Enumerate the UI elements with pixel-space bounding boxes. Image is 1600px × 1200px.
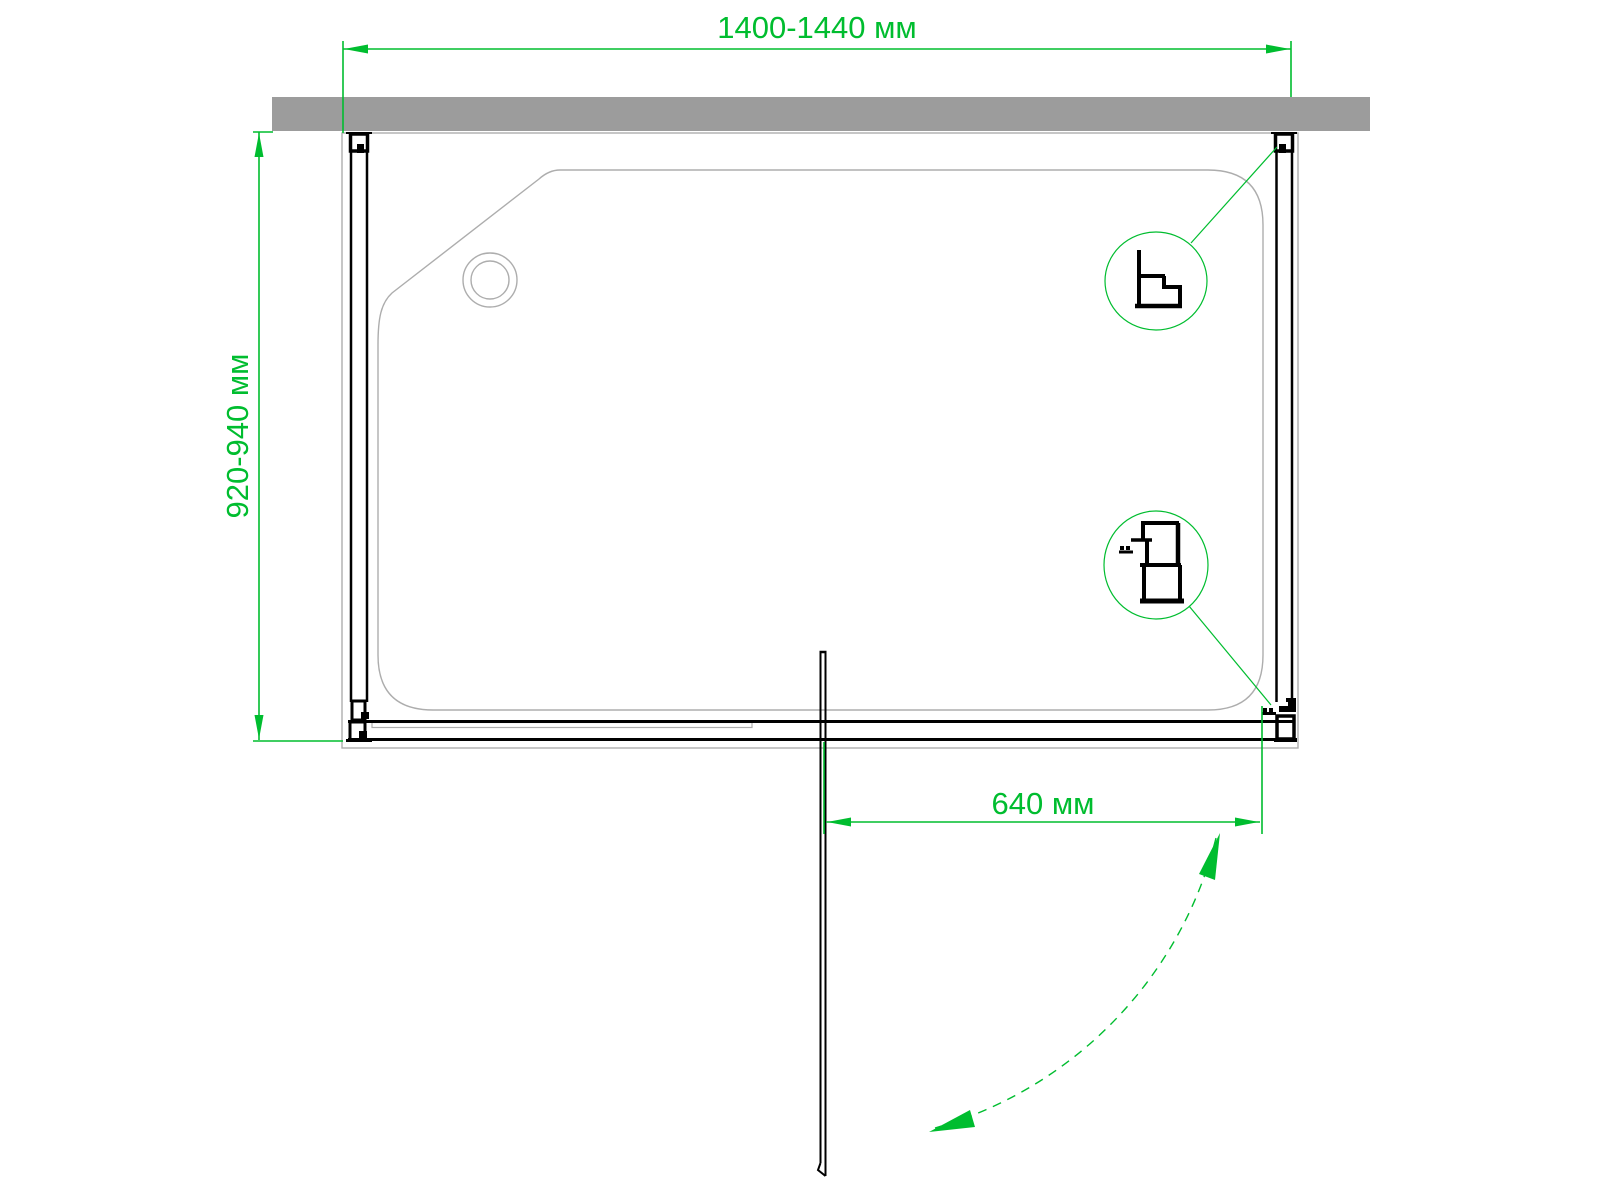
door-width-dimension: 640 мм (824, 706, 1262, 834)
wall (272, 97, 1370, 131)
shower-enclosure-plan-diagram: 1400-1440 мм 920-940 мм 640 мм (0, 0, 1600, 1200)
door-profile-section-icon (1119, 521, 1184, 602)
depth-dimension-label: 920-940 мм (220, 353, 255, 518)
wall-profile-section-icon (1135, 250, 1182, 308)
drain-icon (463, 253, 517, 307)
door-panel (818, 652, 827, 1176)
shower-tray-inner-edge (378, 170, 1263, 710)
door-width-dimension-label: 640 мм (992, 786, 1095, 821)
wall-profile-detail-circle (1105, 147, 1277, 330)
depth-dimension: 920-940 мм (220, 132, 343, 741)
right-wall-profile (1262, 133, 1297, 740)
detail-leader-line-top (1191, 147, 1277, 243)
door-profile-detail-circle (1104, 511, 1271, 705)
fixed-glass-panel (372, 723, 752, 728)
door-swing-arc (929, 833, 1220, 1132)
detail-leader-line-bottom (1189, 606, 1271, 705)
left-wall-profile (346, 133, 372, 741)
width-dimension-label: 1400-1440 мм (717, 10, 917, 45)
diagram-drawing: 1400-1440 мм 920-940 мм 640 мм (0, 0, 1600, 1200)
